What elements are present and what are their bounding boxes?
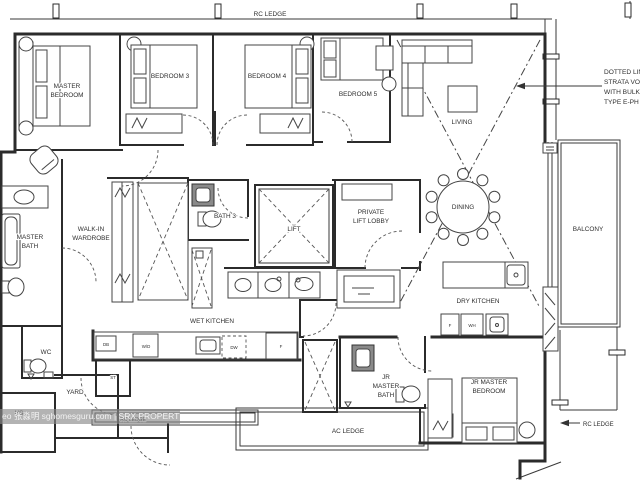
dining-label: DINING: [452, 204, 474, 211]
master-bedroom-furniture: [19, 37, 90, 177]
private-lift-lobby-label2: LIFT LOBBY: [353, 218, 390, 225]
living-furniture: [402, 40, 477, 116]
bedroom3-furniture: [126, 37, 197, 133]
ac-ledge-label: AC LEDGE: [332, 428, 364, 435]
bedroom5-label: BEDROOM 5: [339, 91, 378, 98]
lift-label: LIFT: [287, 226, 300, 233]
rc-ledge-right-arrow: [560, 420, 580, 426]
jr-master-bath-label: JR: [382, 374, 390, 381]
master-bath-label2: BATH: [22, 243, 39, 250]
bath3-fixtures: [192, 184, 221, 227]
master-bath-label: MASTER: [17, 234, 44, 241]
jr-master-bath-label2: MASTER: [373, 383, 400, 390]
dry-kitchen-label: DRY KITCHEN: [456, 298, 499, 305]
rc-ledge-top: [10, 1, 631, 19]
bottom-right-diagonal: [516, 462, 561, 479]
bedroom3-label: BEDROOM 3: [151, 73, 190, 80]
wh-label: WH: [468, 323, 475, 328]
wd-label: W/D: [142, 344, 151, 349]
master-bedroom-label2: BEDROOM: [50, 92, 83, 99]
floorplan-canvas: RC LEDGE MASTER BEDROOM BEDROOM 3 BEDROO…: [0, 0, 640, 480]
bedroom5-furniture: [321, 38, 396, 91]
walk-in-wardrobe-label2: WARDROBE: [72, 235, 109, 242]
master-bath-fixtures: [2, 186, 48, 296]
rc-ledge-top-label: RC LEDGE: [254, 11, 287, 18]
strata-note-arrow: [516, 83, 602, 89]
st-label: ST: [110, 375, 116, 380]
jr-master-bedroom-label: JR MASTER: [471, 379, 508, 386]
ac-shaft: [303, 340, 337, 412]
strata-note-line1: DOTTED LIN: [604, 69, 640, 76]
strata-note-line4: TYPE E-PH: [604, 99, 639, 106]
duct-shaft: [543, 287, 558, 351]
private-lift-lobby-label: PRIVATE: [358, 209, 384, 216]
bath3-label: BATH 3: [214, 213, 236, 220]
fridge-wet-label: F: [280, 344, 283, 349]
jr-master-bedroom-label2: BEDROOM: [472, 388, 505, 395]
db-label: DB: [103, 342, 109, 347]
wet-kitchen-label: WET KITCHEN: [190, 318, 234, 325]
strata-note-line2: STRATA VO: [604, 79, 640, 86]
strata-note-line3: WITH BULKH: [604, 89, 640, 96]
balcony-label: BALCONY: [573, 226, 604, 233]
walk-in-wardrobe-label: WALK-IN: [78, 226, 105, 233]
living-label: LIVING: [452, 119, 473, 126]
yard-label: YARD: [66, 389, 84, 396]
bedroom4-label: BEDROOM 4: [248, 73, 287, 80]
master-bedroom-label: MASTER: [54, 83, 81, 90]
fridge-dry-label: F: [449, 323, 452, 328]
bedroom4-furniture: [245, 37, 314, 133]
rc-ledge-right-label: RC LEDGE: [583, 422, 614, 428]
lobby-furniture: [337, 184, 400, 308]
wc-fixtures: [24, 359, 53, 379]
floorplan-page: RC LEDGE MASTER BEDROOM BEDROOM 3 BEDROO…: [0, 0, 640, 480]
dw-label: DW: [230, 345, 238, 350]
watermark-banner: eo 张淼明 sghomesguru.com | SRX PROPERTY: [0, 409, 180, 424]
wc-label: WC: [41, 349, 52, 356]
jr-master-bath-label3: BATH: [378, 392, 395, 399]
